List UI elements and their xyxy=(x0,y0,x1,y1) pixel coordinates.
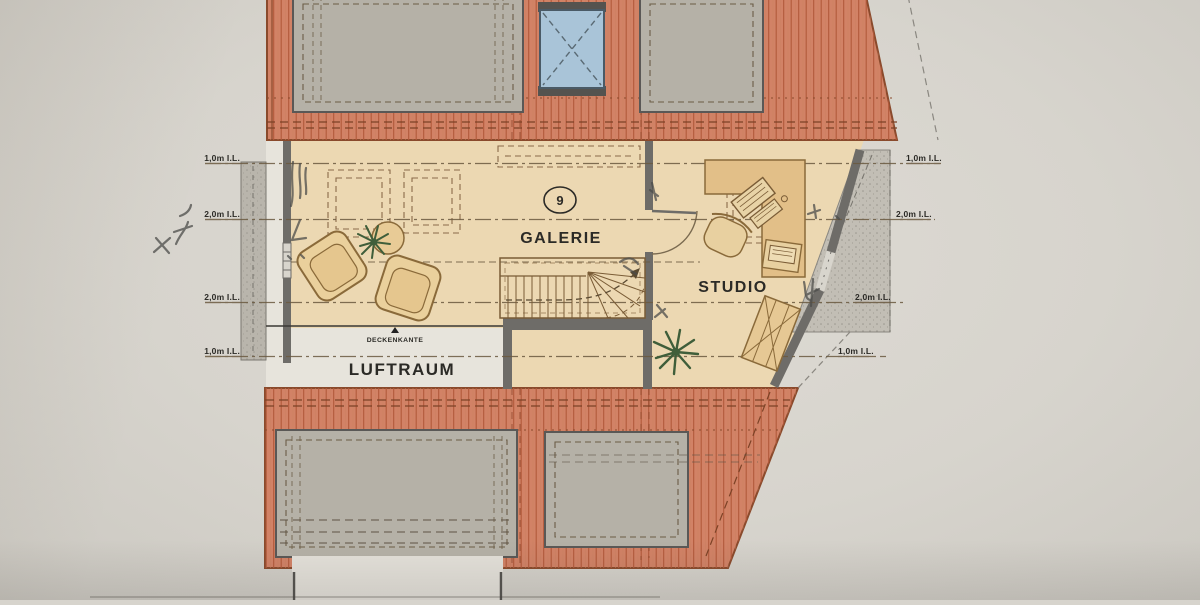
floorplan-drawing: DECKENKANTE 9 GALERIE STUDIO LUFTRAUM 1,… xyxy=(0,0,1200,600)
pencil-x-mark xyxy=(154,238,170,253)
skylight-window xyxy=(538,2,606,96)
galerie-label: GALERIE xyxy=(520,230,602,247)
dim-right-1: 1,0m I.L. xyxy=(906,153,942,163)
dim-right-2: 2,0m I.L. xyxy=(896,209,932,219)
dim-left-1: 1,0m I.L. xyxy=(204,153,240,163)
top-dormer-left xyxy=(293,0,523,112)
studio-label: STUDIO xyxy=(698,279,767,296)
dim-left-2: 2,0m I.L. xyxy=(204,209,240,219)
stair-number: 9 xyxy=(556,193,563,208)
top-roof xyxy=(267,0,938,140)
dim-right-4: 1,0m I.L. xyxy=(838,346,874,356)
pencil-scribble xyxy=(174,205,192,244)
luftraum-label: LUFTRAUM xyxy=(349,360,455,379)
dim-right-3: 2,0m I.L. xyxy=(855,292,891,302)
dim-left-3: 2,0m I.L. xyxy=(204,292,240,302)
top-dormer-right xyxy=(640,0,763,112)
left-ledge xyxy=(241,162,266,360)
printer-table xyxy=(762,240,802,273)
deckenkante-label: DECKENKANTE xyxy=(367,337,424,344)
dim-left-4: 1,0m I.L. xyxy=(204,346,240,356)
bottom-dormer-left xyxy=(276,430,517,557)
floorplan-photo: DECKENKANTE 9 GALERIE STUDIO LUFTRAUM 1,… xyxy=(0,0,1200,600)
